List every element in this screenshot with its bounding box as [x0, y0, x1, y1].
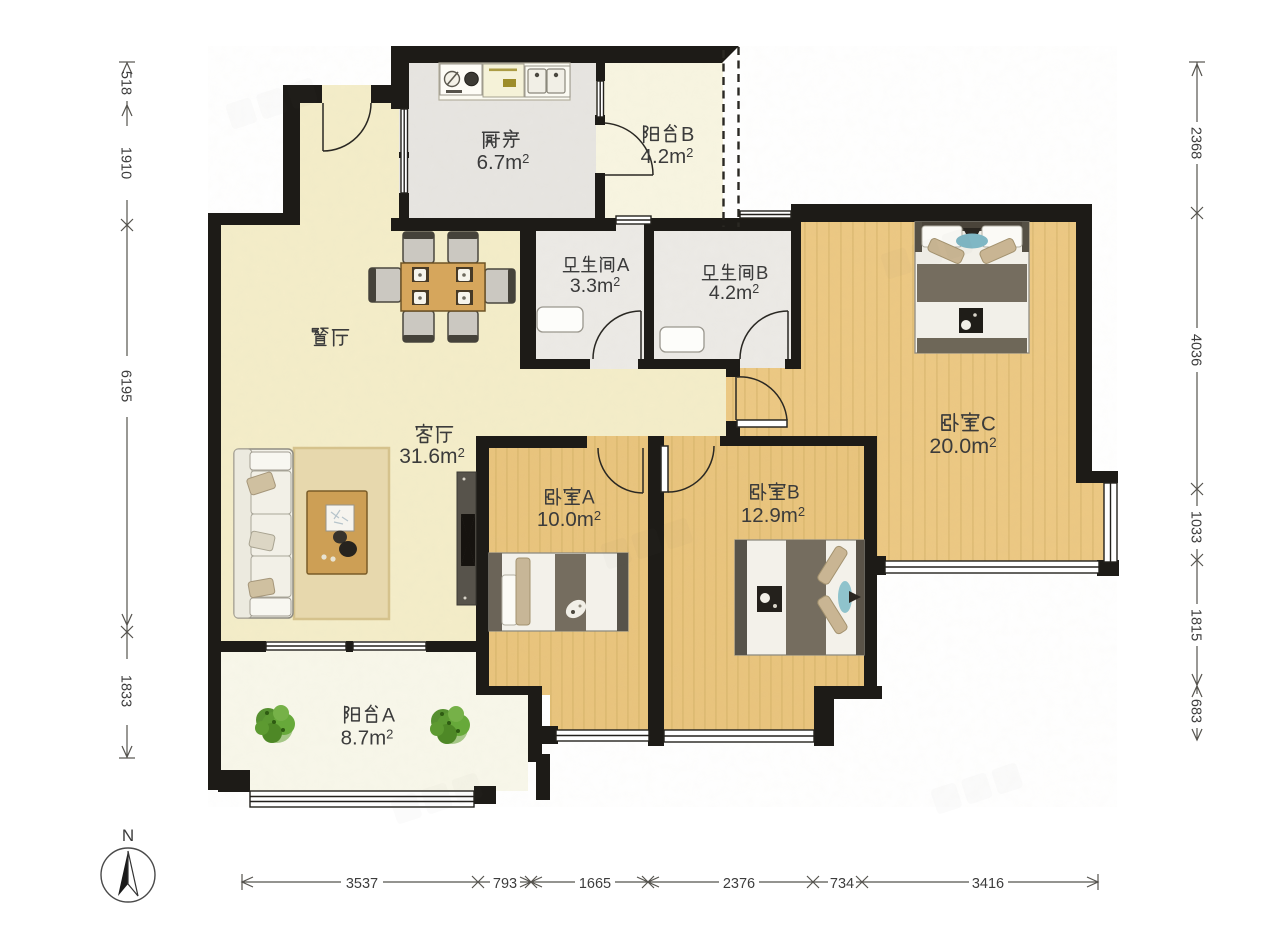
svg-text:31.6m2: 31.6m2	[399, 445, 465, 468]
svg-text:3416: 3416	[972, 876, 1004, 892]
svg-text:3537: 3537	[346, 876, 378, 892]
svg-text:6195: 6195	[118, 370, 134, 402]
svg-text:518: 518	[118, 71, 134, 95]
svg-text:C: C	[981, 413, 996, 436]
svg-text:1033: 1033	[1188, 511, 1204, 543]
svg-text:A: A	[582, 488, 595, 509]
svg-text:20.0m2: 20.0m2	[929, 434, 996, 458]
svg-text:B: B	[756, 262, 768, 283]
svg-text:1665: 1665	[579, 876, 611, 892]
svg-text:8.7m2: 8.7m2	[341, 727, 394, 750]
svg-text:1910: 1910	[118, 147, 134, 179]
svg-text:2376: 2376	[723, 876, 755, 892]
svg-text:734: 734	[830, 876, 854, 892]
svg-text:1815: 1815	[1188, 609, 1204, 641]
svg-text:B: B	[681, 124, 694, 146]
svg-text:A: A	[617, 254, 630, 275]
svg-text:6.7m2: 6.7m2	[477, 151, 530, 174]
svg-text:N: N	[122, 826, 134, 845]
svg-text:10.0m2: 10.0m2	[537, 508, 601, 531]
svg-text:4.2m2: 4.2m2	[641, 145, 694, 168]
svg-text:683: 683	[1188, 699, 1204, 723]
svg-text:4036: 4036	[1188, 334, 1204, 366]
svg-text:12.9m2: 12.9m2	[741, 504, 805, 527]
svg-text:2368: 2368	[1188, 127, 1204, 159]
svg-text:1833: 1833	[118, 675, 134, 707]
svg-text:3.3m2: 3.3m2	[570, 275, 620, 297]
svg-text:A: A	[382, 705, 395, 727]
svg-text:4.2m2: 4.2m2	[709, 282, 759, 304]
svg-text:B: B	[787, 483, 800, 504]
svg-text:793: 793	[493, 876, 517, 892]
